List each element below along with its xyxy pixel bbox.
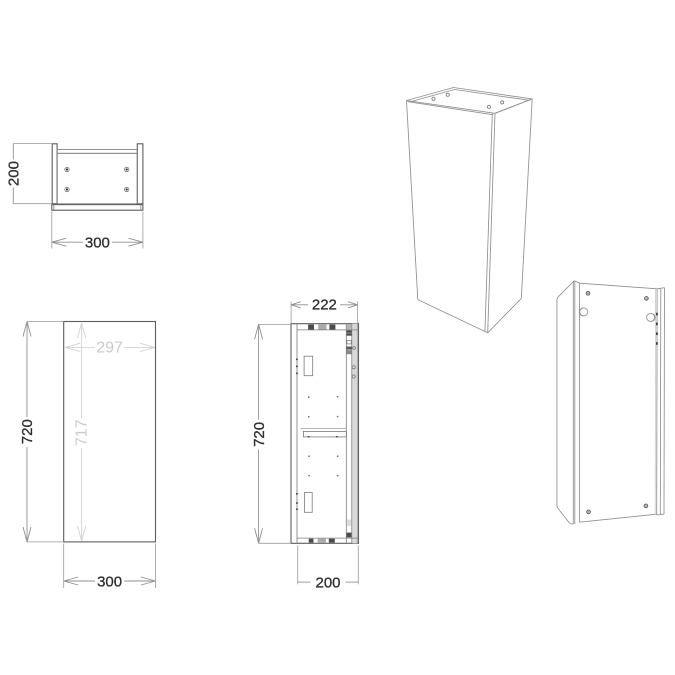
svg-text:300: 300 <box>85 235 110 252</box>
svg-text:200: 200 <box>315 574 340 591</box>
svg-text:720: 720 <box>251 422 268 447</box>
svg-text:720: 720 <box>19 419 36 444</box>
svg-text:222: 222 <box>312 297 337 314</box>
svg-text:297: 297 <box>96 339 123 356</box>
svg-text:717: 717 <box>74 419 91 446</box>
svg-text:300: 300 <box>97 573 122 590</box>
svg-text:200: 200 <box>6 161 23 186</box>
